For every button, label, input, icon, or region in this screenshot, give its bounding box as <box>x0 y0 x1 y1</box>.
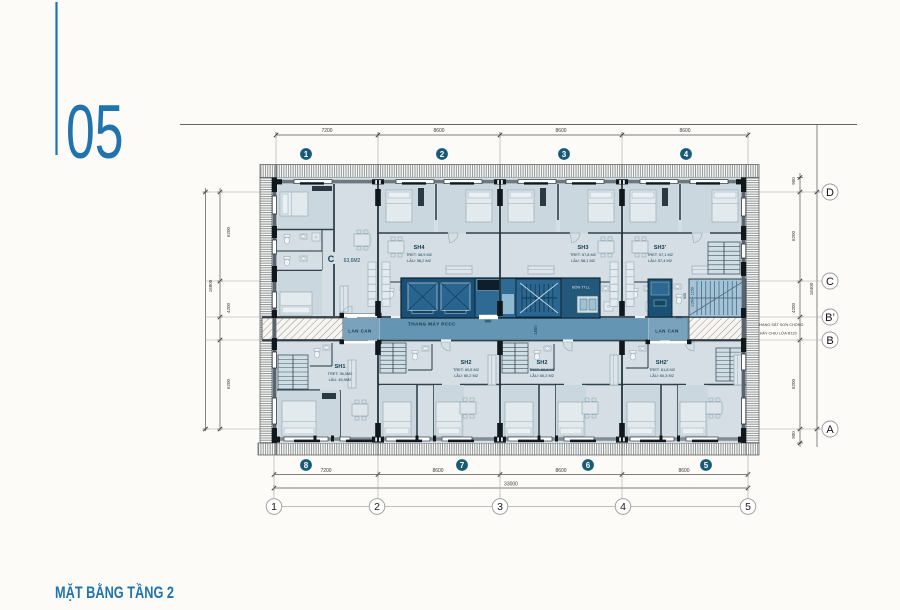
svg-text:LẦU: 60,3 M2: LẦU: 60,3 M2 <box>650 373 674 378</box>
svg-text:7: 7 <box>460 461 465 470</box>
svg-text:8: 8 <box>304 461 309 470</box>
svg-text:4: 4 <box>620 501 626 513</box>
svg-text:2: 2 <box>374 501 380 513</box>
svg-text:TRET: 61,8 M2: TRET: 61,8 M2 <box>649 367 675 372</box>
svg-text:SH3’: SH3’ <box>654 245 667 251</box>
svg-text:B: B <box>826 335 833 347</box>
svg-text:4200: 4200 <box>226 302 231 313</box>
svg-text:6200: 6200 <box>226 378 231 389</box>
svg-text:1: 1 <box>271 501 277 513</box>
svg-text:2: 2 <box>440 150 445 159</box>
svg-text:CHÁY CHỊU LỬA R120: CHÁY CHỊU LỬA R120 <box>757 331 797 336</box>
svg-text:18400: 18400 <box>809 282 814 295</box>
svg-text:6200: 6200 <box>226 226 231 237</box>
svg-text:1800: 1800 <box>533 325 538 335</box>
svg-text:6: 6 <box>586 461 591 470</box>
svg-text:SH4: SH4 <box>414 245 426 251</box>
svg-text:05: 05 <box>66 89 123 174</box>
svg-text:LẦU: 57,4 M2: LẦU: 57,4 M2 <box>648 258 672 263</box>
svg-text:33000: 33000 <box>504 482 518 488</box>
svg-text:4: 4 <box>684 150 689 159</box>
svg-text:4200: 4200 <box>791 302 796 313</box>
svg-text:TRET: 57,1 M2: TRET: 57,1 M2 <box>647 252 673 257</box>
svg-text:SH3: SH3 <box>578 245 589 251</box>
svg-text:TRET: 60,8 M2: TRET: 60,8 M2 <box>453 367 479 372</box>
svg-text:16800: 16800 <box>208 279 213 292</box>
svg-text:LAN CAN: LAN CAN <box>348 329 372 334</box>
svg-text:D: D <box>826 187 834 199</box>
svg-text:LẦU: 60,2 M2: LẦU: 60,2 M2 <box>530 373 554 378</box>
svg-text:8600: 8600 <box>679 128 690 134</box>
svg-text:MẶT BẰNG TẦNG 2: MẶT BẰNG TẦNG 2 <box>55 583 174 602</box>
svg-text:THANG MÁY PCCC: THANG MÁY PCCC <box>408 321 456 327</box>
svg-text:LẦU: 60,2 M2: LẦU: 60,2 M2 <box>454 373 478 378</box>
svg-text:8600: 8600 <box>433 128 444 134</box>
svg-text:TRET: 57,8 M2: TRET: 57,8 M2 <box>570 252 596 257</box>
svg-text:5: 5 <box>745 501 751 513</box>
svg-text:63,6M2: 63,6M2 <box>344 258 361 264</box>
svg-text:7200: 7200 <box>321 128 332 134</box>
svg-text:BỒN TTLL: BỒN TTLL <box>572 285 590 290</box>
svg-text:LẦU: 58,2 M2: LẦU: 58,2 M2 <box>407 258 431 263</box>
svg-text:SH2: SH2 <box>461 360 472 366</box>
svg-text:800: 800 <box>676 316 682 320</box>
svg-text:8600: 8600 <box>432 468 443 474</box>
svg-text:6200: 6200 <box>791 378 796 389</box>
svg-text:TRET: 60,8 M2: TRET: 60,8 M2 <box>529 367 555 372</box>
svg-text:7200: 7200 <box>320 468 331 474</box>
svg-text:LAN CAN: LAN CAN <box>655 329 679 334</box>
svg-text:C: C <box>826 276 834 288</box>
svg-text:TRET: 36,0M2: TRET: 36,0M2 <box>328 371 353 376</box>
svg-text:900: 900 <box>485 319 493 324</box>
svg-text:1: 1 <box>304 150 309 159</box>
svg-text:5: 5 <box>704 461 709 470</box>
svg-text:B’: B’ <box>825 312 835 324</box>
svg-text:C: C <box>328 254 335 264</box>
svg-text:3: 3 <box>562 150 567 159</box>
svg-text:900: 900 <box>683 293 687 299</box>
svg-text:A: A <box>826 424 834 436</box>
svg-text:900: 900 <box>791 431 796 439</box>
svg-text:LẦU: 45,9M2: LẦU: 45,9M2 <box>329 377 352 382</box>
svg-text:8600: 8600 <box>555 128 566 134</box>
svg-text:LẦU: 58,1 M2: LẦU: 58,1 M2 <box>571 258 595 263</box>
svg-text:SH2: SH2 <box>537 360 548 366</box>
svg-text:3: 3 <box>497 501 503 513</box>
svg-text:8600: 8600 <box>555 468 566 474</box>
svg-text:TRET: 58,9 M2: TRET: 58,9 M2 <box>406 252 432 257</box>
svg-text:THANG SẮT SƠN CHỐNG: THANG SẮT SƠN CHỐNG <box>757 322 803 327</box>
svg-text:SH2’: SH2’ <box>656 360 669 366</box>
svg-text:SH1: SH1 <box>335 364 346 370</box>
svg-text:900: 900 <box>791 177 796 185</box>
svg-text:8600: 8600 <box>678 468 689 474</box>
svg-text:1150 - 1150: 1150 - 1150 <box>691 287 695 307</box>
svg-text:6200: 6200 <box>791 230 796 241</box>
